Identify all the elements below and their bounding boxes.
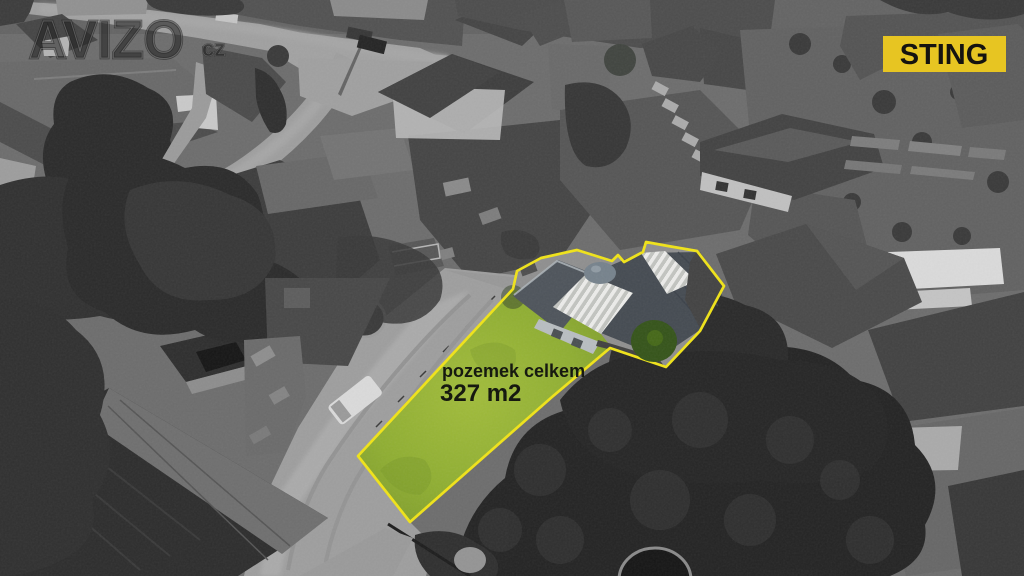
svg-text:STING: STING	[900, 39, 989, 71]
svg-text:AVIZO: AVIZO	[29, 10, 184, 70]
svg-text:cz: cz	[202, 36, 225, 61]
